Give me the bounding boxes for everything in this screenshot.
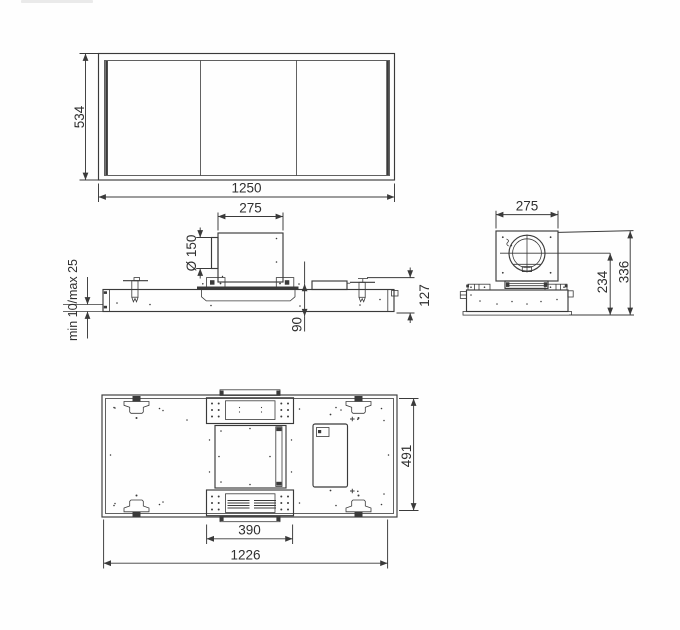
dim-recess-depth: 90 bbox=[290, 262, 305, 333]
side-view bbox=[63, 233, 398, 312]
hood-dimension-drawing: 534 1250 bbox=[0, 0, 680, 630]
glass-panel-area bbox=[105, 61, 390, 176]
duct-opening bbox=[500, 235, 610, 273]
end-box-width-label: 275 bbox=[516, 199, 539, 214]
dim-body-depth: 491 bbox=[399, 399, 419, 511]
screw-cross-marks bbox=[350, 417, 359, 494]
recess-plate bbox=[202, 290, 296, 301]
electrical-box bbox=[313, 414, 359, 494]
overall-height-label: 336 bbox=[617, 261, 632, 284]
corner-bracket-top-right bbox=[335, 396, 382, 419]
dim-bracket-span: 390 bbox=[207, 523, 293, 544]
hood-body-end bbox=[460, 290, 573, 315]
vent-slots bbox=[228, 501, 277, 509]
motor-cover bbox=[209, 426, 292, 489]
bottom-view bbox=[102, 390, 397, 522]
body-length-label: 1226 bbox=[230, 547, 260, 562]
plate-screw-dots bbox=[211, 403, 289, 418]
hood-base-inner bbox=[106, 399, 394, 514]
dim-front-width: 1250 bbox=[99, 181, 395, 203]
corner-bracket-top-left bbox=[113, 396, 160, 419]
slide-rail bbox=[276, 427, 282, 487]
plate-screw-dots-bottom bbox=[211, 496, 289, 511]
duct-diameter-label: Ø 150 bbox=[184, 235, 199, 272]
end-bracket bbox=[392, 291, 399, 297]
dim-end-box-width: 275 bbox=[496, 199, 558, 229]
body-depth-label: 491 bbox=[399, 445, 414, 468]
duct-axis-height-label: 234 bbox=[595, 270, 610, 293]
mounting-rail-end bbox=[505, 281, 548, 288]
cable-glyph bbox=[507, 239, 509, 246]
mounting-feet bbox=[197, 278, 300, 288]
dim-side-duct-box-width: 275 bbox=[218, 200, 283, 230]
body-screw-dots bbox=[116, 299, 381, 307]
dim-ceiling-thickness: min 10/max 25 bbox=[66, 259, 88, 341]
dim-duct-diameter: Ø 150 bbox=[184, 228, 211, 279]
front-height-dim-label: 534 bbox=[72, 105, 87, 128]
technical-drawing-page: 534 1250 bbox=[0, 0, 680, 630]
duct-spigot bbox=[212, 238, 219, 269]
end-view bbox=[460, 231, 610, 315]
recess-depth-label: 90 bbox=[290, 317, 305, 332]
bottom-mounting-plate bbox=[207, 490, 294, 516]
front-view bbox=[99, 54, 395, 181]
top-mounting-plate bbox=[207, 398, 294, 424]
bracket-span-label: 390 bbox=[238, 523, 261, 538]
bracket-end-left bbox=[466, 284, 490, 290]
cover-screw-dots bbox=[209, 428, 292, 486]
dim-duct-axis-height: 234 bbox=[595, 253, 610, 315]
side-duct-box-width-label: 275 bbox=[239, 200, 262, 215]
side-hook-right bbox=[568, 291, 573, 297]
ceiling-thickness-label: min 10/max 25 bbox=[66, 259, 80, 341]
front-width-dim-label: 1250 bbox=[231, 181, 261, 196]
hood-outer-frame bbox=[99, 54, 395, 181]
body-height-label: 127 bbox=[417, 284, 432, 307]
ceiling-clamp-right bbox=[350, 279, 375, 302]
junction-box-side bbox=[312, 281, 350, 290]
dim-front-height: 534 bbox=[72, 54, 98, 181]
motor-box-side bbox=[212, 233, 284, 282]
dim-body-height: 127 bbox=[367, 268, 432, 324]
glass-seals bbox=[107, 61, 388, 175]
panel-dividers bbox=[201, 61, 297, 176]
